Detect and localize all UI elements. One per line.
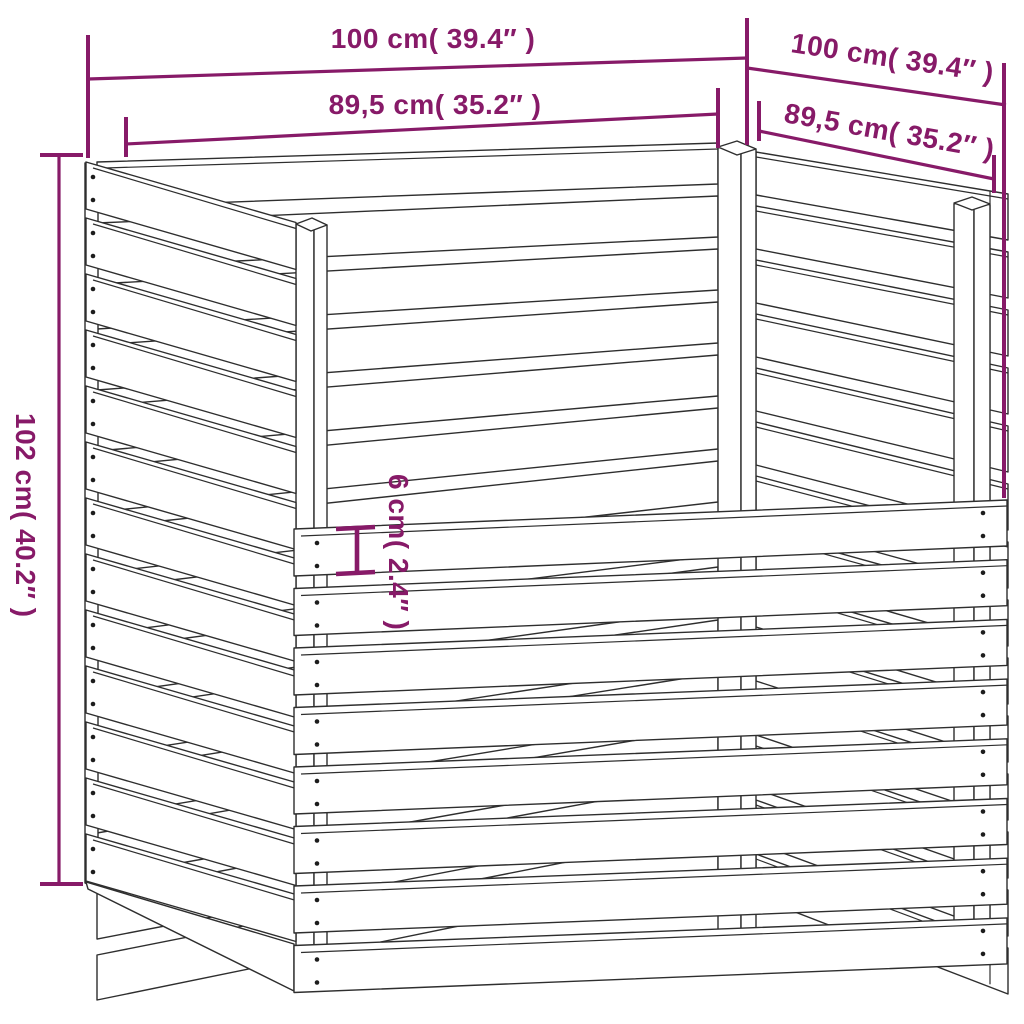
left-wall-slats <box>85 162 296 991</box>
dim-tick <box>336 572 375 574</box>
dim-tick <box>336 527 375 529</box>
dim-label-side-inner-width: 89,5 cm( 35.2″ ) <box>782 97 997 164</box>
dim-label-back-width: 100 cm( 39.4″ ) <box>331 23 536 54</box>
dim-label-back-inner-width: 89,5 cm( 35.2″ ) <box>329 89 542 120</box>
dim-label-slat-width: 6 cm( 2.4″ ) <box>383 474 414 630</box>
diagram-canvas: 100 cm( 39.4″ ) 89,5 cm( 35.2″ ) 100 cm(… <box>0 0 1024 1024</box>
dim-line-back-width <box>88 58 747 79</box>
composter-dimension-diagram: 100 cm( 39.4″ ) 89,5 cm( 35.2″ ) 100 cm(… <box>0 0 1024 1024</box>
dim-label-height: 102 cm( 40.2″ ) <box>10 413 41 618</box>
